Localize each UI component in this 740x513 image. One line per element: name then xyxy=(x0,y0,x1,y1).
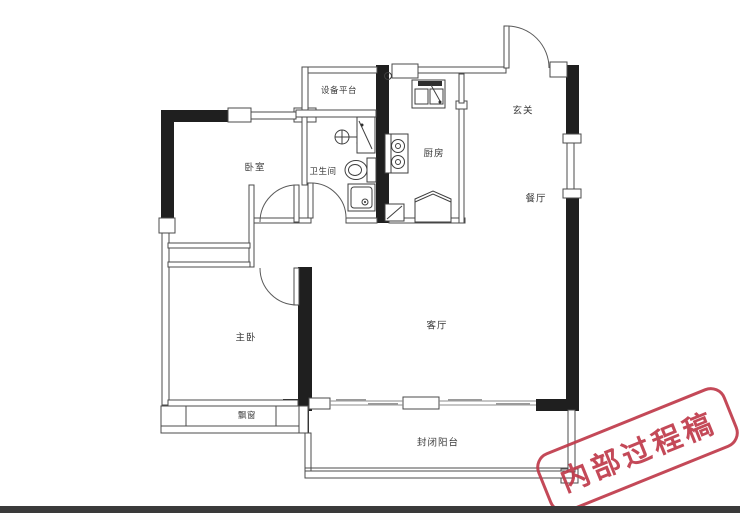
washbasin-icon xyxy=(348,184,375,211)
bay-window-structure xyxy=(161,406,299,433)
door-mat-icon xyxy=(385,204,404,221)
bathroom-door xyxy=(308,183,346,218)
room-label-kitchen: 厨房 xyxy=(423,149,444,159)
shower-icon xyxy=(335,129,360,144)
room-label-bedroom: 卧室 xyxy=(244,163,265,173)
vanity-cabinet-icon xyxy=(357,117,375,153)
room-label-master-bedroom: 主卧 xyxy=(235,333,256,343)
entry-door xyxy=(504,26,549,68)
room-label-bay-window: 飘窗 xyxy=(238,411,256,420)
floor-plan: 卧室 设备平台 卫生间 厨房 玄关 餐厅 客厅 主卧 飘窗 封闭阳台 内部过程稿 xyxy=(0,0,740,513)
room-label-equipment-platform: 设备平台 xyxy=(321,86,357,95)
room-label-dining: 餐厅 xyxy=(525,194,546,204)
room-label-balcony: 封闭阳台 xyxy=(417,438,459,448)
toilet-icon xyxy=(345,158,376,182)
bottom-edge-bar xyxy=(0,506,740,513)
refrigerator-icon xyxy=(415,191,451,222)
room-label-foyer: 玄关 xyxy=(512,106,533,116)
room-label-bathroom: 卫生间 xyxy=(309,167,336,176)
bedroom-door xyxy=(260,185,299,222)
balcony-sliding-window xyxy=(309,397,536,409)
stove-icon xyxy=(385,134,408,173)
double-sink-icon xyxy=(412,80,445,108)
master-bedroom-door xyxy=(260,268,299,305)
room-label-living: 客厅 xyxy=(426,321,447,331)
